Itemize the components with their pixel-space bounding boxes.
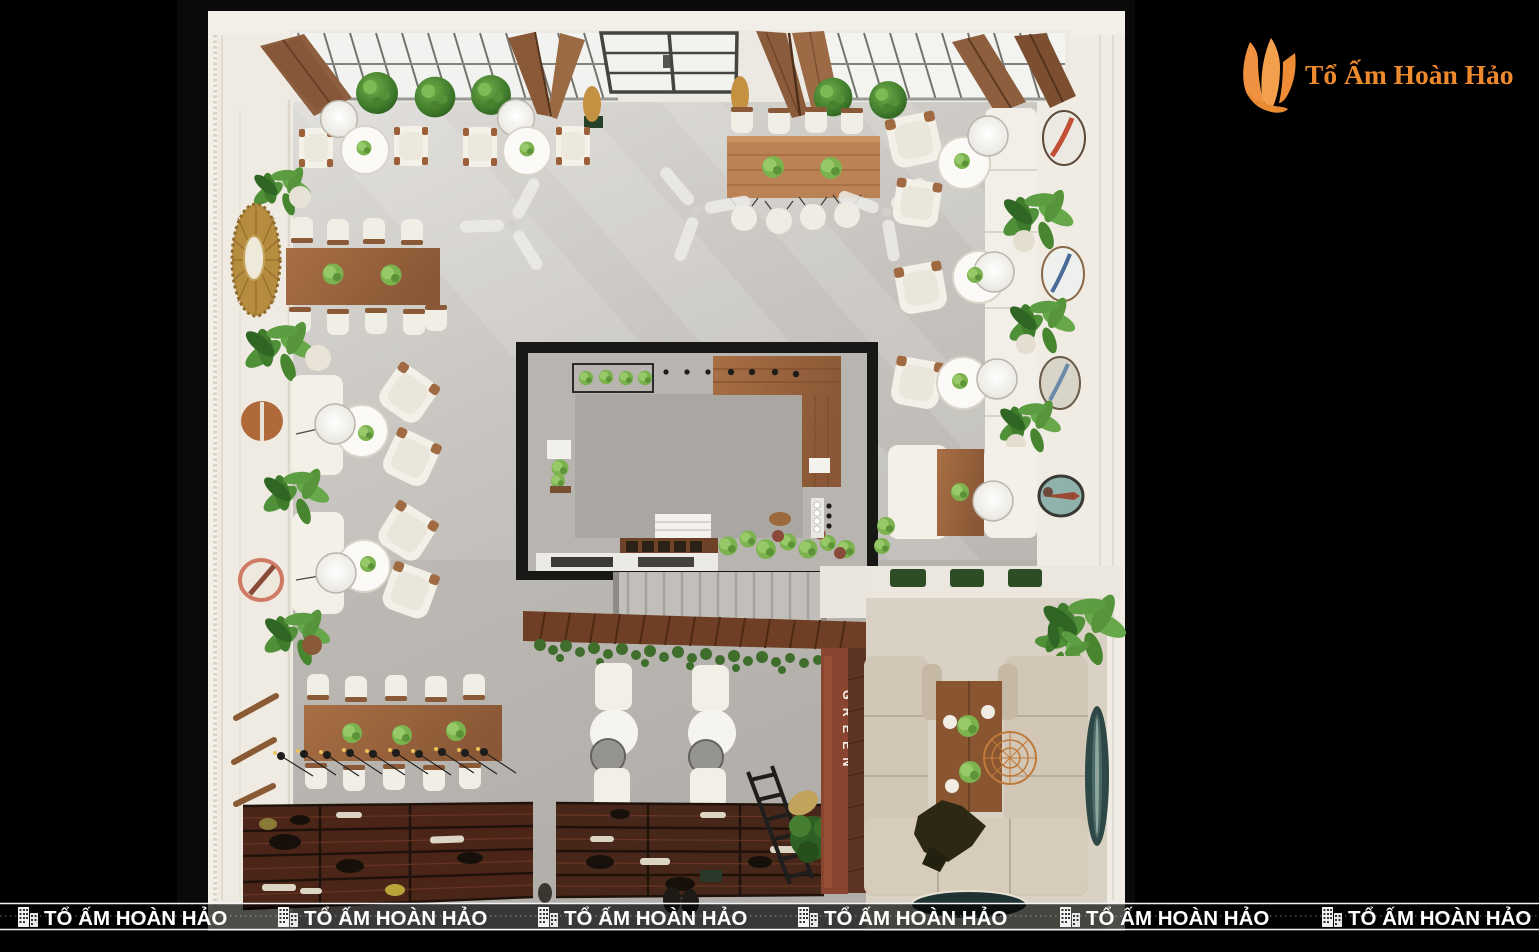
svg-text:TỔ ẤM HOÀN HẢO: TỔ ẤM HOÀN HẢO — [44, 906, 227, 930]
svg-text:Tổ Ấm Hoàn Hảo: Tổ Ấm Hoàn Hảo — [1305, 59, 1514, 90]
